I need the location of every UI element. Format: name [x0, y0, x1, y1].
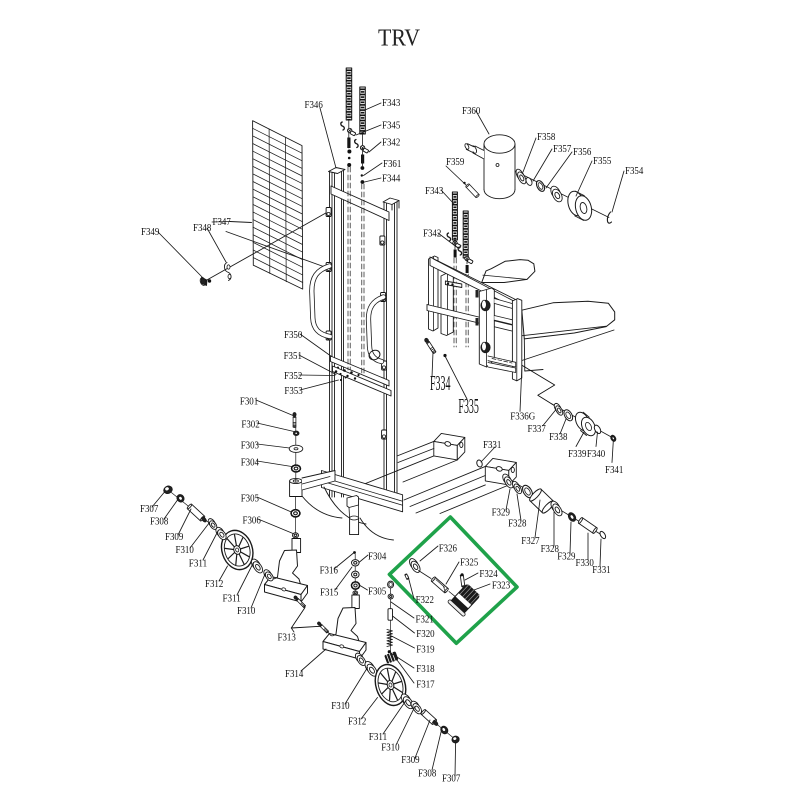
svg-text:F356: F356: [573, 147, 591, 158]
svg-text:F327: F327: [521, 536, 539, 547]
svg-text:F329: F329: [492, 508, 510, 519]
svg-text:F304: F304: [368, 552, 387, 563]
svg-text:F361: F361: [383, 159, 401, 170]
svg-text:F346: F346: [305, 100, 323, 111]
svg-text:F325: F325: [460, 558, 478, 569]
svg-text:F309: F309: [165, 532, 183, 543]
svg-text:F359: F359: [446, 157, 464, 168]
svg-text:F322: F322: [416, 595, 434, 606]
svg-text:F341: F341: [605, 465, 623, 476]
svg-text:F304: F304: [241, 458, 260, 469]
svg-text:F321: F321: [416, 615, 434, 626]
svg-text:F342: F342: [382, 138, 400, 149]
svg-text:F355: F355: [593, 156, 611, 167]
svg-text:F328: F328: [508, 518, 526, 529]
svg-text:F342: F342: [423, 229, 441, 240]
svg-text:F323: F323: [492, 581, 510, 592]
svg-text:F314: F314: [285, 669, 304, 680]
svg-text:F311: F311: [189, 558, 207, 569]
svg-text:F326: F326: [439, 544, 457, 555]
svg-text:F350: F350: [284, 330, 302, 341]
svg-text:F310: F310: [176, 545, 194, 556]
svg-text:F339: F339: [568, 449, 586, 460]
svg-text:F358: F358: [537, 132, 555, 143]
svg-text:F307: F307: [442, 773, 460, 784]
svg-text:F338: F338: [549, 432, 567, 443]
svg-text:F305: F305: [368, 586, 386, 597]
svg-text:F317: F317: [416, 680, 434, 691]
svg-text:F336G: F336G: [510, 412, 535, 423]
svg-text:F349: F349: [141, 227, 159, 238]
svg-text:F311: F311: [223, 593, 241, 604]
svg-text:F312: F312: [348, 717, 366, 728]
svg-text:F312: F312: [205, 579, 223, 590]
svg-text:F331: F331: [483, 440, 501, 451]
svg-text:F313: F313: [278, 633, 296, 644]
svg-text:F328: F328: [541, 544, 559, 555]
svg-text:F310: F310: [331, 701, 349, 712]
svg-text:F306: F306: [243, 516, 261, 527]
svg-text:F343: F343: [382, 98, 400, 109]
svg-text:F308: F308: [418, 768, 436, 779]
svg-text:F309: F309: [401, 755, 419, 766]
svg-text:F303: F303: [241, 441, 259, 452]
svg-text:F337: F337: [528, 424, 546, 435]
svg-text:F330: F330: [576, 558, 594, 569]
svg-text:F347: F347: [213, 217, 231, 228]
svg-text:F360: F360: [462, 106, 480, 117]
svg-text:F318: F318: [416, 664, 434, 675]
svg-text:F311: F311: [369, 732, 387, 743]
svg-text:F357: F357: [553, 144, 571, 155]
svg-text:F343: F343: [425, 186, 443, 197]
svg-text:F351: F351: [284, 351, 302, 362]
svg-text:F331: F331: [592, 565, 610, 576]
svg-text:F345: F345: [382, 121, 400, 132]
svg-text:F305: F305: [241, 493, 259, 504]
svg-text:F308: F308: [150, 517, 168, 528]
svg-text:F324: F324: [479, 569, 498, 580]
svg-text:F354: F354: [625, 166, 644, 177]
svg-text:F334: F334: [430, 371, 451, 395]
svg-text:F335: F335: [458, 394, 479, 418]
svg-text:F301: F301: [240, 397, 258, 408]
svg-text:F344: F344: [382, 174, 401, 185]
svg-text:F320: F320: [416, 629, 434, 640]
svg-text:F329: F329: [557, 551, 575, 562]
svg-text:F348: F348: [193, 223, 211, 234]
svg-text:F340: F340: [587, 449, 605, 460]
svg-text:F307: F307: [140, 504, 158, 515]
svg-text:F316: F316: [320, 566, 338, 577]
svg-text:F302: F302: [241, 420, 259, 431]
svg-text:F310: F310: [237, 606, 255, 617]
svg-text:TRV: TRV: [378, 26, 421, 52]
svg-text:F353: F353: [284, 386, 302, 397]
svg-text:F315: F315: [320, 588, 338, 599]
svg-text:F352: F352: [284, 371, 302, 382]
svg-text:F310: F310: [381, 743, 399, 754]
svg-text:F319: F319: [416, 645, 434, 656]
